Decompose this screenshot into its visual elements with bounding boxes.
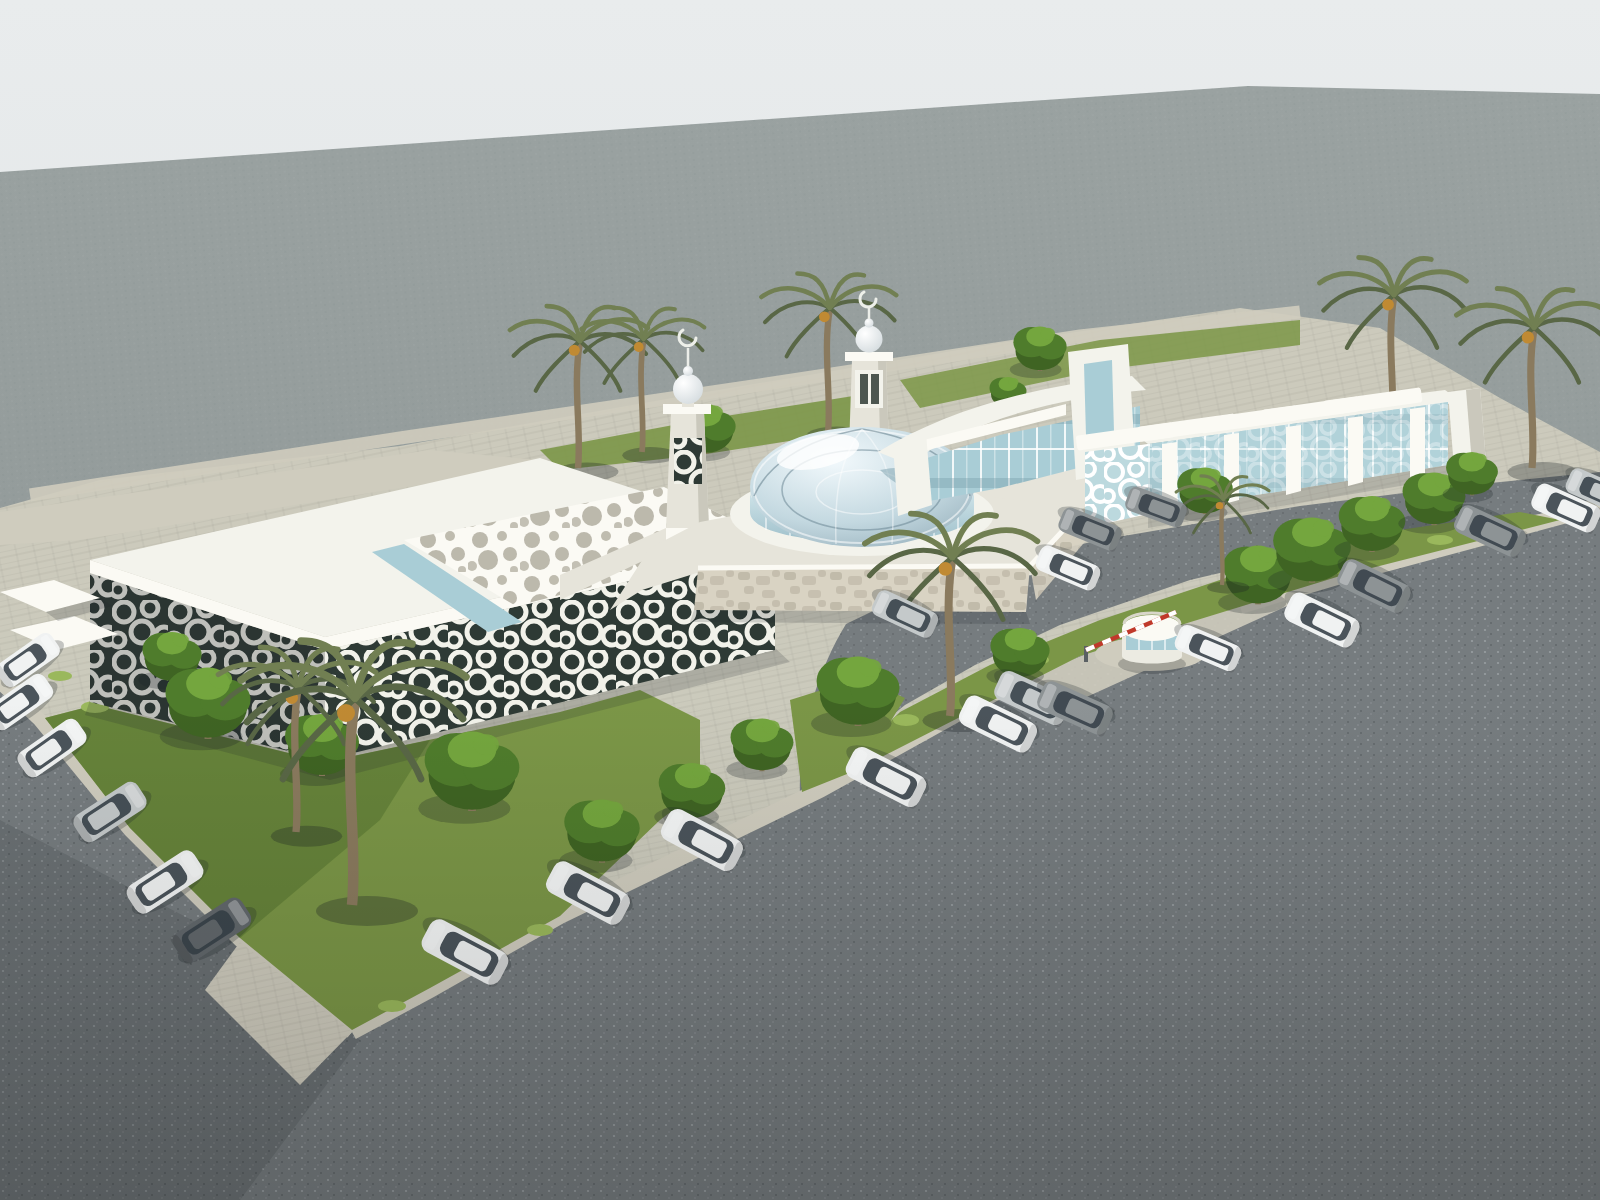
minaret-right-window-1 <box>860 374 868 404</box>
minaret-left-knob <box>683 366 693 376</box>
podium-base-shadow <box>690 610 1030 624</box>
minaret-right-ball <box>856 326 883 353</box>
mosque-complex-rendering: Aerial 3D architectural rendering of a w… <box>0 0 1600 1200</box>
minaret-right-collar <box>845 352 893 361</box>
rendering-canvas: Aerial 3D architectural rendering of a w… <box>0 0 1600 1200</box>
rear-hall-pylon <box>893 433 932 516</box>
podium-wall-front <box>694 566 1030 612</box>
lighting-overlays <box>0 700 1600 1200</box>
minaret-right-window-2 <box>871 374 879 404</box>
kiosk-dome-roof <box>1122 615 1182 641</box>
minaret-left-ornament-panel <box>674 438 702 484</box>
minaret-right-knob <box>865 319 874 328</box>
minaret-left-ball <box>673 374 703 404</box>
rear-hall-tower-window <box>1084 360 1114 436</box>
foreground-vignette <box>0 700 1600 1200</box>
